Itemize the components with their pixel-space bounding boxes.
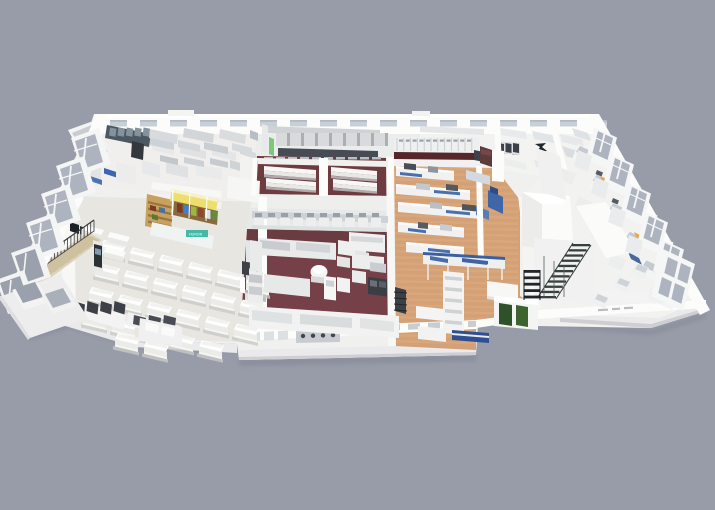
svg-text:HURON: HURON xyxy=(189,233,203,237)
